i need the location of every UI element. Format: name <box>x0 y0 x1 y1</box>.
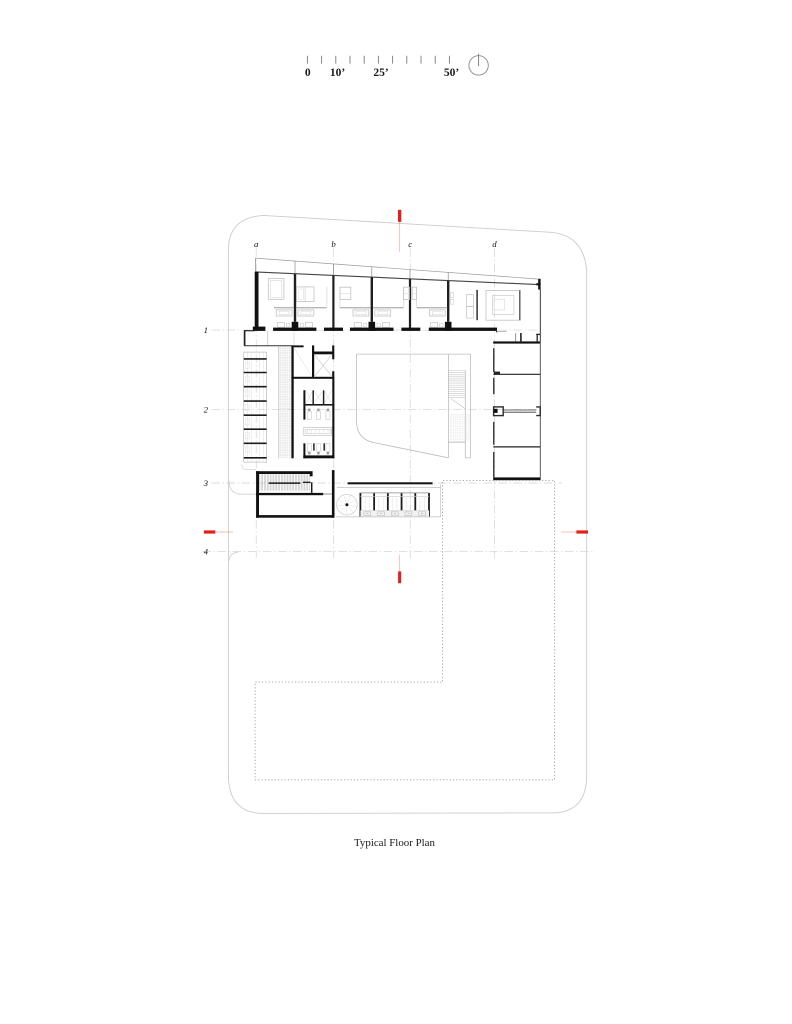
svg-text:10’: 10’ <box>330 67 345 79</box>
svg-text:25’: 25’ <box>373 67 388 79</box>
svg-text:a: a <box>254 239 259 249</box>
svg-text:50’: 50’ <box>444 67 459 79</box>
svg-text:Typical Floor Plan: Typical Floor Plan <box>354 837 435 849</box>
svg-text:3: 3 <box>203 478 209 488</box>
svg-text:4: 4 <box>204 546 209 556</box>
svg-text:1: 1 <box>204 325 208 335</box>
svg-text:c: c <box>408 239 412 249</box>
svg-text:0: 0 <box>305 67 311 79</box>
svg-text:2: 2 <box>204 405 209 415</box>
svg-text:d: d <box>492 239 497 249</box>
svg-text:b: b <box>331 239 336 249</box>
